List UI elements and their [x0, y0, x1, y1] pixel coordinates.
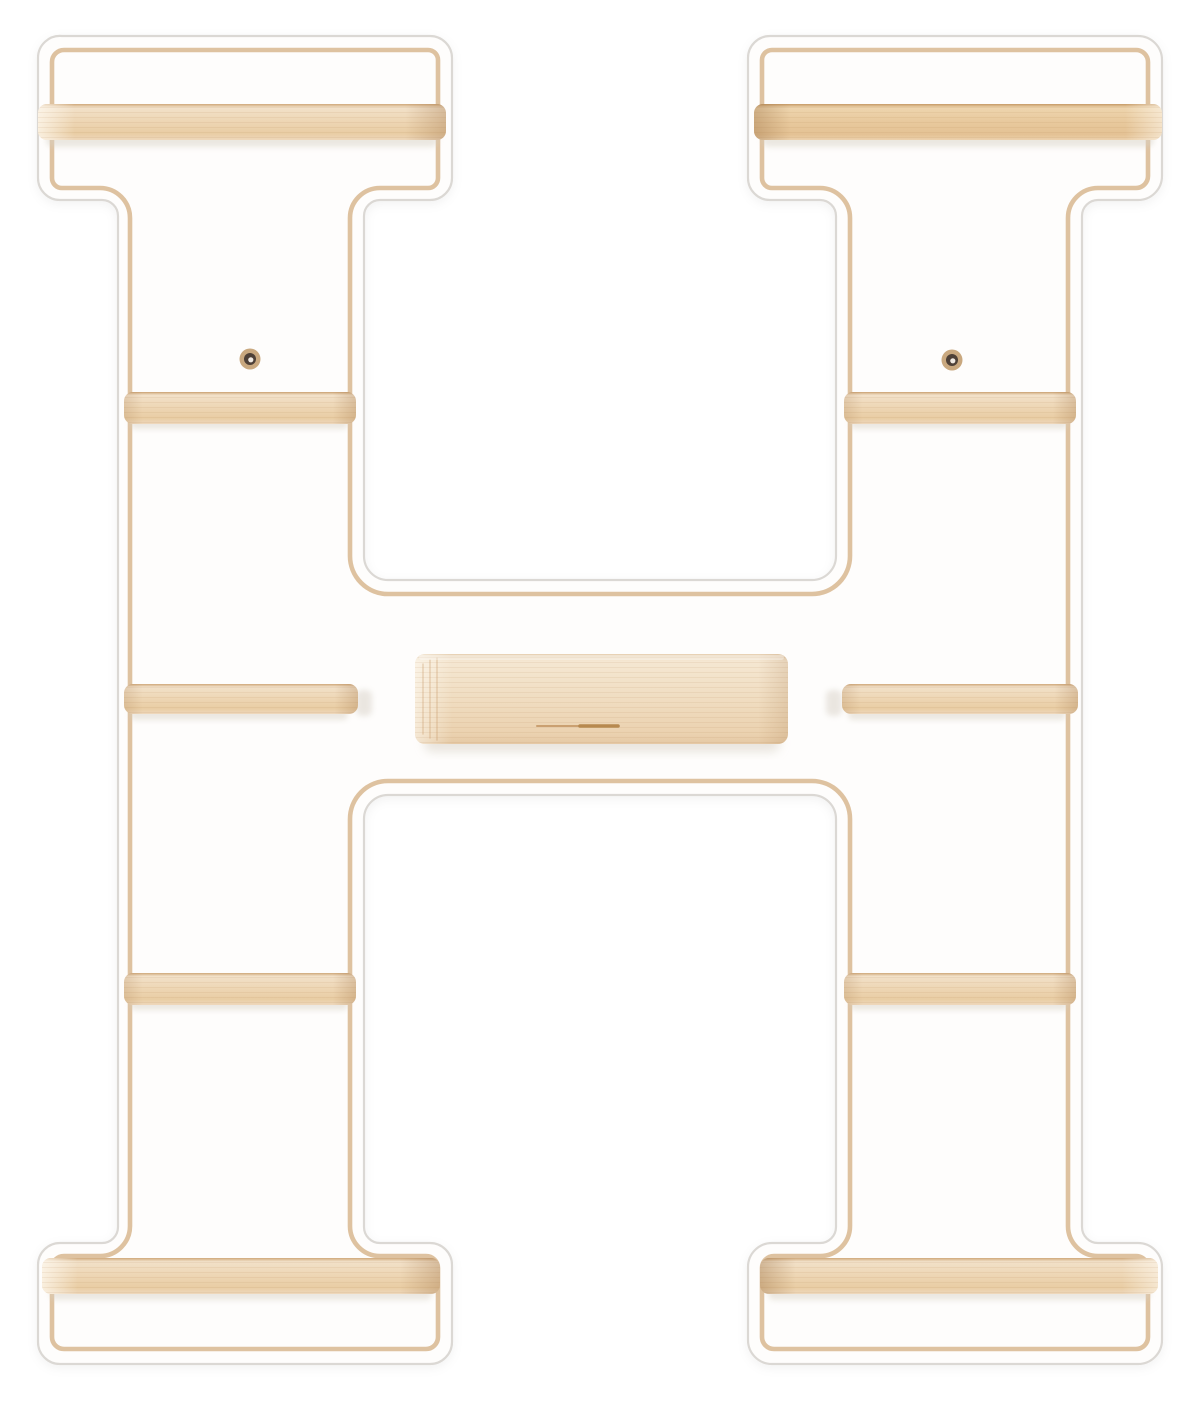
- shelf-bar-grain: [124, 392, 356, 424]
- shelf-bar-grain: [844, 392, 1076, 424]
- screw-hole-left: [240, 349, 261, 370]
- shelf-bar-grain: [760, 1258, 1158, 1294]
- shelf-stem-right-middle: [826, 684, 1078, 720]
- shelf-bar-grain: [124, 973, 356, 1005]
- shelf-top-left: [38, 104, 446, 147]
- shelf-stem-right-upper: [844, 392, 1076, 429]
- screw-hole-glint: [248, 357, 253, 362]
- shelf-bar-grain: [42, 1258, 440, 1294]
- shelf-bar-grain: [754, 104, 1162, 140]
- shelf-bar-grain: [844, 973, 1076, 1005]
- shelf-bottom-left: [42, 1258, 440, 1300]
- h-shelf-illustration: [0, 0, 1200, 1402]
- shelf-stem-left-middle: [124, 684, 372, 720]
- shelf-bar-grain: [124, 684, 358, 714]
- shelf-bar-grain: [842, 684, 1078, 714]
- block-top-highlight: [419, 655, 784, 660]
- shelf-bottom-right: [760, 1258, 1158, 1300]
- shelf-stem-left-upper: [124, 392, 356, 429]
- screw-hole-right: [942, 350, 963, 371]
- shelf-bar-grain: [38, 104, 446, 140]
- product-photo: [0, 0, 1200, 1402]
- shelf-top-right: [754, 104, 1162, 147]
- screw-hole-glint: [950, 358, 955, 363]
- shelf-stem-left-lower: [124, 973, 356, 1010]
- block-grain: [415, 654, 788, 744]
- center-shelf-block: [415, 654, 788, 752]
- shelf-end-cast-shadow: [826, 690, 842, 716]
- shelf-end-cast-shadow: [356, 690, 372, 716]
- shelf-stem-right-lower: [844, 973, 1076, 1010]
